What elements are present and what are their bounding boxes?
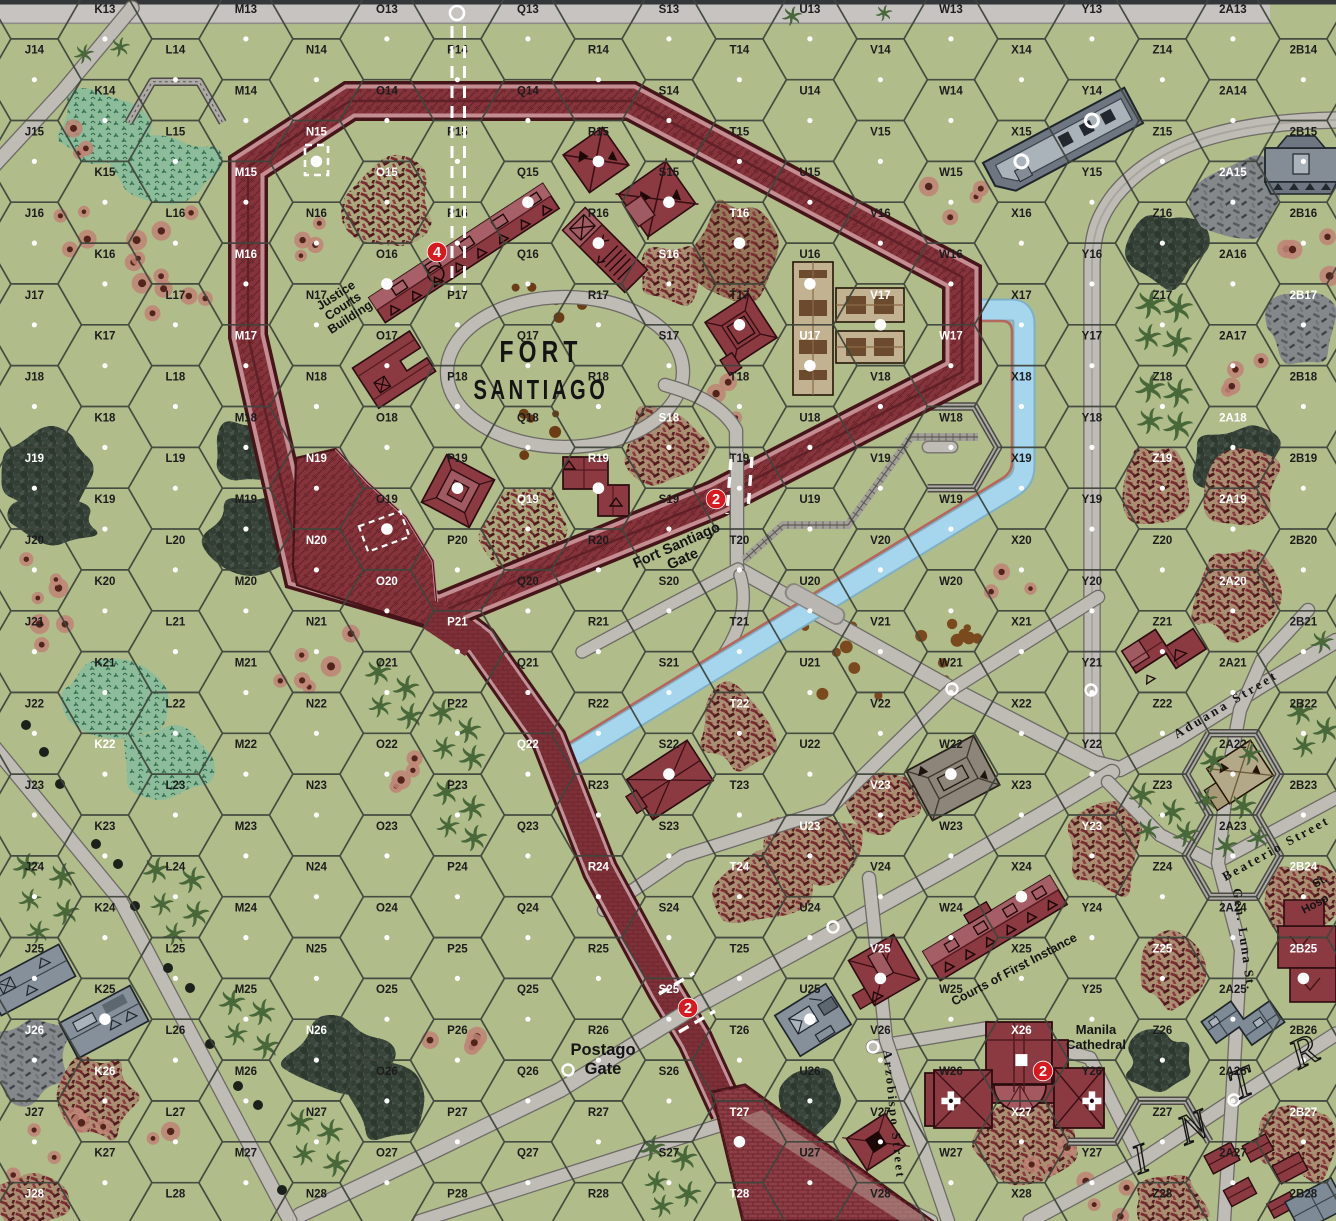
svg-text:2B24: 2B24 bbox=[1290, 862, 1318, 874]
svg-text:2A20: 2A20 bbox=[1219, 576, 1247, 588]
svg-text:S21: S21 bbox=[659, 658, 680, 670]
svg-text:J22: J22 bbox=[25, 698, 44, 710]
svg-text:T16: T16 bbox=[729, 208, 749, 220]
svg-text:2A15: 2A15 bbox=[1219, 167, 1247, 179]
svg-text:W15: W15 bbox=[939, 167, 963, 179]
svg-text:O13: O13 bbox=[376, 4, 398, 16]
svg-text:Q27: Q27 bbox=[517, 1148, 539, 1160]
svg-text:2A25: 2A25 bbox=[1219, 984, 1247, 996]
svg-text:N16: N16 bbox=[306, 208, 327, 220]
svg-text:W17: W17 bbox=[939, 331, 963, 343]
svg-text:T23: T23 bbox=[729, 780, 749, 792]
svg-text:U22: U22 bbox=[799, 739, 820, 751]
svg-text:N27: N27 bbox=[306, 1107, 327, 1119]
svg-text:P18: P18 bbox=[447, 372, 468, 384]
svg-text:X24: X24 bbox=[1011, 862, 1032, 874]
svg-text:2A19: 2A19 bbox=[1219, 494, 1247, 506]
svg-text:L21: L21 bbox=[165, 617, 185, 629]
svg-text:U14: U14 bbox=[799, 86, 821, 98]
svg-text:K19: K19 bbox=[94, 494, 115, 506]
svg-text:Q24: Q24 bbox=[517, 903, 539, 915]
svg-text:2B28: 2B28 bbox=[1290, 1189, 1318, 1201]
svg-text:2A18: 2A18 bbox=[1219, 412, 1247, 424]
svg-text:U13: U13 bbox=[799, 4, 820, 16]
svg-text:Z18: Z18 bbox=[1152, 372, 1172, 384]
svg-text:Postago: Postago bbox=[570, 1041, 635, 1059]
svg-text:M22: M22 bbox=[235, 739, 257, 751]
svg-text:L19: L19 bbox=[165, 453, 185, 465]
svg-text:Q14: Q14 bbox=[517, 86, 539, 98]
svg-text:K27: K27 bbox=[94, 1148, 115, 1160]
svg-text:X19: X19 bbox=[1011, 453, 1031, 465]
svg-text:R25: R25 bbox=[588, 943, 610, 955]
svg-text:Gate: Gate bbox=[585, 1060, 622, 1078]
svg-text:O15: O15 bbox=[376, 167, 398, 179]
svg-text:Y26: Y26 bbox=[1082, 1066, 1102, 1078]
svg-text:2B27: 2B27 bbox=[1290, 1107, 1318, 1119]
svg-text:Q19: Q19 bbox=[517, 494, 539, 506]
svg-text:2A17: 2A17 bbox=[1219, 331, 1247, 343]
svg-text:2A16: 2A16 bbox=[1219, 249, 1247, 261]
svg-text:V14: V14 bbox=[870, 45, 891, 57]
svg-text:O27: O27 bbox=[376, 1148, 398, 1160]
svg-text:N26: N26 bbox=[306, 1025, 327, 1037]
svg-text:2A22: 2A22 bbox=[1219, 739, 1247, 751]
svg-text:K24: K24 bbox=[94, 903, 116, 915]
svg-text:K21: K21 bbox=[94, 658, 116, 670]
svg-text:X20: X20 bbox=[1011, 535, 1031, 547]
svg-text:L26: L26 bbox=[165, 1025, 185, 1037]
svg-text:Y15: Y15 bbox=[1082, 167, 1103, 179]
svg-text:Y19: Y19 bbox=[1082, 494, 1102, 506]
svg-text:S17: S17 bbox=[659, 331, 679, 343]
svg-text:Y25: Y25 bbox=[1082, 984, 1103, 996]
svg-text:V26: V26 bbox=[870, 1025, 890, 1037]
svg-text:R16: R16 bbox=[588, 208, 609, 220]
svg-text:X15: X15 bbox=[1011, 126, 1032, 138]
svg-text:V24: V24 bbox=[870, 862, 891, 874]
svg-text:K16: K16 bbox=[94, 249, 115, 261]
svg-text:R22: R22 bbox=[588, 698, 609, 710]
svg-text:J16: J16 bbox=[25, 208, 44, 220]
svg-text:T28: T28 bbox=[729, 1189, 749, 1201]
svg-text:R19: R19 bbox=[588, 453, 609, 465]
svg-text:Z27: Z27 bbox=[1152, 1107, 1172, 1119]
svg-text:M21: M21 bbox=[235, 658, 258, 670]
svg-text:K17: K17 bbox=[94, 331, 115, 343]
svg-text:U21: U21 bbox=[799, 658, 821, 670]
svg-text:X18: X18 bbox=[1011, 372, 1032, 384]
svg-text:W18: W18 bbox=[939, 412, 963, 424]
svg-text:K18: K18 bbox=[94, 412, 116, 424]
svg-text:U23: U23 bbox=[799, 821, 820, 833]
svg-text:J19: J19 bbox=[25, 453, 44, 465]
svg-text:M23: M23 bbox=[235, 821, 257, 833]
svg-text:W24: W24 bbox=[939, 903, 963, 915]
svg-text:J27: J27 bbox=[25, 1107, 44, 1119]
svg-text:2A23: 2A23 bbox=[1219, 821, 1247, 833]
svg-text:W16: W16 bbox=[939, 249, 963, 261]
svg-text:U15: U15 bbox=[799, 167, 821, 179]
svg-text:2B23: 2B23 bbox=[1290, 780, 1318, 792]
svg-text:W19: W19 bbox=[939, 494, 963, 506]
svg-text:Y24: Y24 bbox=[1082, 903, 1103, 915]
svg-text:V17: V17 bbox=[870, 290, 890, 302]
svg-text:P28: P28 bbox=[447, 1189, 468, 1201]
svg-text:W21: W21 bbox=[939, 658, 963, 670]
svg-text:U18: U18 bbox=[799, 412, 821, 424]
svg-text:L20: L20 bbox=[165, 535, 185, 547]
svg-text:4: 4 bbox=[433, 245, 441, 261]
svg-text:T26: T26 bbox=[729, 1025, 749, 1037]
svg-text:Z26: Z26 bbox=[1152, 1025, 1172, 1037]
svg-text:V22: V22 bbox=[870, 698, 890, 710]
svg-text:Z20: Z20 bbox=[1152, 535, 1172, 547]
svg-text:R14: R14 bbox=[588, 45, 610, 57]
svg-text:Q13: Q13 bbox=[517, 4, 539, 16]
svg-text:X22: X22 bbox=[1011, 698, 1031, 710]
svg-text:2B21: 2B21 bbox=[1290, 617, 1318, 629]
svg-text:T25: T25 bbox=[729, 943, 749, 955]
svg-text:Y13: Y13 bbox=[1082, 4, 1102, 16]
svg-text:T24: T24 bbox=[729, 862, 749, 874]
svg-text:M15: M15 bbox=[235, 167, 258, 179]
svg-text:2A27: 2A27 bbox=[1219, 1148, 1247, 1160]
svg-text:R28: R28 bbox=[588, 1189, 610, 1201]
svg-text:O16: O16 bbox=[376, 249, 398, 261]
svg-text:J17: J17 bbox=[25, 290, 44, 302]
svg-text:T18: T18 bbox=[729, 372, 749, 384]
svg-text:Y21: Y21 bbox=[1082, 658, 1103, 670]
svg-text:2A14: 2A14 bbox=[1219, 86, 1247, 98]
svg-text:W13: W13 bbox=[939, 4, 963, 16]
svg-text:K22: K22 bbox=[94, 739, 115, 751]
svg-text:M18: M18 bbox=[235, 412, 258, 424]
svg-text:T17: T17 bbox=[729, 290, 749, 302]
svg-text:N20: N20 bbox=[306, 535, 327, 547]
svg-text:2: 2 bbox=[1039, 1064, 1047, 1080]
svg-text:U24: U24 bbox=[799, 903, 821, 915]
svg-text:Z22: Z22 bbox=[1152, 698, 1172, 710]
svg-text:S18: S18 bbox=[659, 412, 680, 424]
svg-text:O25: O25 bbox=[376, 984, 398, 996]
svg-text:N25: N25 bbox=[306, 943, 328, 955]
svg-text:Y17: Y17 bbox=[1082, 331, 1102, 343]
svg-text:L15: L15 bbox=[165, 126, 185, 138]
svg-text:T21: T21 bbox=[729, 617, 749, 629]
svg-text:N23: N23 bbox=[306, 780, 327, 792]
svg-text:2A13: 2A13 bbox=[1219, 4, 1247, 16]
svg-text:M27: M27 bbox=[235, 1148, 257, 1160]
svg-text:R17: R17 bbox=[588, 290, 609, 302]
svg-text:M20: M20 bbox=[235, 576, 257, 588]
svg-text:K14: K14 bbox=[94, 86, 116, 98]
svg-text:X26: X26 bbox=[1011, 1025, 1031, 1037]
svg-text:P25: P25 bbox=[447, 943, 468, 955]
svg-text:P23: P23 bbox=[447, 780, 467, 792]
svg-text:M17: M17 bbox=[235, 331, 257, 343]
svg-text:Q25: Q25 bbox=[517, 984, 539, 996]
svg-text:M25: M25 bbox=[235, 984, 258, 996]
svg-text:P26: P26 bbox=[447, 1025, 467, 1037]
svg-text:W27: W27 bbox=[939, 1148, 963, 1160]
svg-text:S24: S24 bbox=[659, 903, 680, 915]
svg-text:Z23: Z23 bbox=[1152, 780, 1172, 792]
svg-text:W14: W14 bbox=[939, 86, 963, 98]
svg-text:S23: S23 bbox=[659, 821, 679, 833]
svg-text:O23: O23 bbox=[376, 821, 398, 833]
svg-text:W20: W20 bbox=[939, 576, 963, 588]
svg-text:O18: O18 bbox=[376, 412, 398, 424]
svg-text:L14: L14 bbox=[165, 45, 185, 57]
svg-text:S27: S27 bbox=[659, 1148, 679, 1160]
svg-text:R20: R20 bbox=[588, 535, 609, 547]
svg-text:2B20: 2B20 bbox=[1290, 535, 1318, 547]
svg-text:V28: V28 bbox=[870, 1189, 891, 1201]
svg-text:R21: R21 bbox=[588, 617, 610, 629]
svg-text:O14: O14 bbox=[376, 86, 398, 98]
svg-text:N24: N24 bbox=[306, 862, 328, 874]
svg-text:J23: J23 bbox=[25, 780, 44, 792]
svg-text:L28: L28 bbox=[165, 1189, 185, 1201]
svg-text:U16: U16 bbox=[799, 249, 820, 261]
svg-text:M19: M19 bbox=[235, 494, 257, 506]
svg-text:Q26: Q26 bbox=[517, 1066, 539, 1078]
svg-text:L24: L24 bbox=[165, 862, 185, 874]
svg-text:R15: R15 bbox=[588, 126, 610, 138]
svg-text:Z19: Z19 bbox=[1152, 453, 1172, 465]
svg-text:R23: R23 bbox=[588, 780, 609, 792]
svg-text:L18: L18 bbox=[165, 372, 185, 384]
svg-text:Z14: Z14 bbox=[1152, 45, 1172, 57]
svg-text:N15: N15 bbox=[306, 126, 328, 138]
svg-text:L25: L25 bbox=[165, 943, 185, 955]
svg-text:Q20: Q20 bbox=[517, 576, 539, 588]
svg-text:2: 2 bbox=[712, 492, 720, 508]
svg-text:U19: U19 bbox=[799, 494, 820, 506]
svg-text:O21: O21 bbox=[376, 658, 398, 670]
svg-text:V19: V19 bbox=[870, 453, 890, 465]
svg-text:O22: O22 bbox=[376, 739, 398, 751]
svg-text:V16: V16 bbox=[870, 208, 890, 220]
svg-text:Y16: Y16 bbox=[1082, 249, 1102, 261]
svg-text:Z15: Z15 bbox=[1152, 126, 1172, 138]
svg-text:T22: T22 bbox=[729, 698, 749, 710]
svg-text:Y23: Y23 bbox=[1082, 821, 1102, 833]
svg-text:P20: P20 bbox=[447, 535, 467, 547]
svg-text:J18: J18 bbox=[25, 372, 45, 384]
svg-text:W22: W22 bbox=[939, 739, 963, 751]
svg-text:T27: T27 bbox=[729, 1107, 749, 1119]
svg-text:Z21: Z21 bbox=[1152, 617, 1172, 629]
svg-text:K23: K23 bbox=[94, 821, 115, 833]
svg-text:Q21: Q21 bbox=[517, 658, 539, 670]
svg-text:L22: L22 bbox=[165, 698, 185, 710]
svg-text:FORT: FORT bbox=[499, 334, 582, 369]
svg-text:J28: J28 bbox=[25, 1189, 45, 1201]
svg-text:W26: W26 bbox=[939, 1066, 963, 1078]
svg-text:J21: J21 bbox=[25, 617, 45, 629]
svg-text:X21: X21 bbox=[1011, 617, 1032, 629]
svg-text:X14: X14 bbox=[1011, 45, 1032, 57]
svg-text:S14: S14 bbox=[659, 86, 680, 98]
svg-text:U26: U26 bbox=[799, 1066, 820, 1078]
svg-text:X16: X16 bbox=[1011, 208, 1031, 220]
svg-text:J14: J14 bbox=[25, 45, 45, 57]
svg-text:S20: S20 bbox=[659, 576, 679, 588]
svg-text:M26: M26 bbox=[235, 1066, 257, 1078]
svg-text:J26: J26 bbox=[25, 1025, 44, 1037]
svg-text:U17: U17 bbox=[799, 331, 820, 343]
svg-text:T20: T20 bbox=[729, 535, 749, 547]
svg-text:O26: O26 bbox=[376, 1066, 398, 1078]
svg-text:K20: K20 bbox=[94, 576, 115, 588]
svg-text:S13: S13 bbox=[659, 4, 679, 16]
svg-text:Z16: Z16 bbox=[1152, 208, 1172, 220]
svg-text:S26: S26 bbox=[659, 1066, 679, 1078]
svg-text:Y14: Y14 bbox=[1082, 86, 1103, 98]
svg-text:N18: N18 bbox=[306, 372, 328, 384]
svg-text:N22: N22 bbox=[306, 698, 327, 710]
svg-text:S22: S22 bbox=[659, 739, 679, 751]
svg-text:Z28: Z28 bbox=[1152, 1189, 1172, 1201]
svg-text:K25: K25 bbox=[94, 984, 116, 996]
svg-text:Q23: Q23 bbox=[517, 821, 539, 833]
svg-text:V23: V23 bbox=[870, 780, 890, 792]
svg-text:T14: T14 bbox=[729, 45, 749, 57]
svg-text:2B15: 2B15 bbox=[1290, 126, 1318, 138]
svg-text:2B14: 2B14 bbox=[1290, 45, 1318, 57]
svg-text:J24: J24 bbox=[25, 862, 45, 874]
svg-text:SANTIAGO: SANTIAGO bbox=[473, 375, 608, 406]
svg-text:2B16: 2B16 bbox=[1290, 208, 1318, 220]
svg-text:N19: N19 bbox=[306, 453, 327, 465]
svg-text:S19: S19 bbox=[659, 494, 679, 506]
svg-text:Q18: Q18 bbox=[517, 412, 539, 424]
svg-text:Y18: Y18 bbox=[1082, 412, 1103, 424]
svg-text:P19: P19 bbox=[447, 453, 467, 465]
svg-text:L27: L27 bbox=[165, 1107, 185, 1119]
svg-text:L16: L16 bbox=[165, 208, 185, 220]
svg-text:V20: V20 bbox=[870, 535, 890, 547]
svg-text:Y20: Y20 bbox=[1082, 576, 1102, 588]
svg-text:U27: U27 bbox=[799, 1148, 820, 1160]
svg-text:2A21: 2A21 bbox=[1219, 658, 1247, 670]
svg-text:Q22: Q22 bbox=[517, 739, 539, 751]
svg-text:N14: N14 bbox=[306, 45, 328, 57]
svg-text:S16: S16 bbox=[659, 249, 679, 261]
svg-text:Z24: Z24 bbox=[1152, 862, 1172, 874]
svg-text:P22: P22 bbox=[447, 698, 467, 710]
svg-text:R24: R24 bbox=[588, 862, 610, 874]
svg-text:Cathedral: Cathedral bbox=[1066, 1037, 1126, 1052]
svg-text:U20: U20 bbox=[799, 576, 820, 588]
svg-text:Y27: Y27 bbox=[1082, 1148, 1102, 1160]
svg-text:J25: J25 bbox=[25, 943, 45, 955]
svg-text:K13: K13 bbox=[94, 4, 115, 16]
svg-text:W23: W23 bbox=[939, 821, 963, 833]
svg-text:U25: U25 bbox=[799, 984, 821, 996]
svg-text:S25: S25 bbox=[659, 984, 680, 996]
svg-text:V15: V15 bbox=[870, 126, 891, 138]
svg-text:J15: J15 bbox=[25, 126, 45, 138]
svg-text:L17: L17 bbox=[165, 290, 185, 302]
svg-text:O20: O20 bbox=[376, 576, 398, 588]
svg-text:M16: M16 bbox=[235, 249, 257, 261]
svg-text:Q15: Q15 bbox=[517, 167, 539, 179]
svg-text:P17: P17 bbox=[447, 290, 467, 302]
svg-text:O24: O24 bbox=[376, 903, 398, 915]
svg-text:J20: J20 bbox=[25, 535, 44, 547]
svg-text:Y22: Y22 bbox=[1082, 739, 1102, 751]
svg-text:V21: V21 bbox=[870, 617, 891, 629]
svg-text:M13: M13 bbox=[235, 4, 257, 16]
svg-text:Z25: Z25 bbox=[1152, 943, 1172, 955]
svg-text:Q16: Q16 bbox=[517, 249, 539, 261]
svg-text:2B25: 2B25 bbox=[1290, 943, 1318, 955]
svg-text:Z17: Z17 bbox=[1152, 290, 1172, 302]
svg-text:T15: T15 bbox=[729, 126, 749, 138]
svg-text:2B17: 2B17 bbox=[1290, 290, 1318, 302]
svg-text:N28: N28 bbox=[306, 1189, 328, 1201]
svg-text:2B18: 2B18 bbox=[1290, 372, 1318, 384]
svg-text:K26: K26 bbox=[94, 1066, 115, 1078]
svg-text:R26: R26 bbox=[588, 1025, 609, 1037]
svg-text:X28: X28 bbox=[1011, 1189, 1032, 1201]
svg-text:L23: L23 bbox=[165, 780, 185, 792]
svg-text:P21: P21 bbox=[447, 617, 468, 629]
svg-text:V18: V18 bbox=[870, 372, 891, 384]
svg-text:2: 2 bbox=[684, 1001, 692, 1017]
svg-text:P24: P24 bbox=[447, 862, 468, 874]
svg-text:M24: M24 bbox=[235, 903, 258, 915]
svg-text:P27: P27 bbox=[447, 1107, 467, 1119]
svg-text:S15: S15 bbox=[659, 167, 680, 179]
svg-text:X27: X27 bbox=[1011, 1107, 1031, 1119]
svg-text:K15: K15 bbox=[94, 167, 116, 179]
svg-text:V25: V25 bbox=[870, 943, 891, 955]
svg-text:O17: O17 bbox=[376, 331, 398, 343]
svg-text:R27: R27 bbox=[588, 1107, 609, 1119]
svg-text:O19: O19 bbox=[376, 494, 398, 506]
svg-text:X23: X23 bbox=[1011, 780, 1031, 792]
svg-text:Manila: Manila bbox=[1076, 1022, 1117, 1037]
svg-text:2B19: 2B19 bbox=[1290, 453, 1318, 465]
svg-text:N21: N21 bbox=[306, 617, 328, 629]
svg-text:M14: M14 bbox=[235, 86, 258, 98]
svg-text:X17: X17 bbox=[1011, 290, 1031, 302]
svg-text:2B22: 2B22 bbox=[1290, 698, 1318, 710]
